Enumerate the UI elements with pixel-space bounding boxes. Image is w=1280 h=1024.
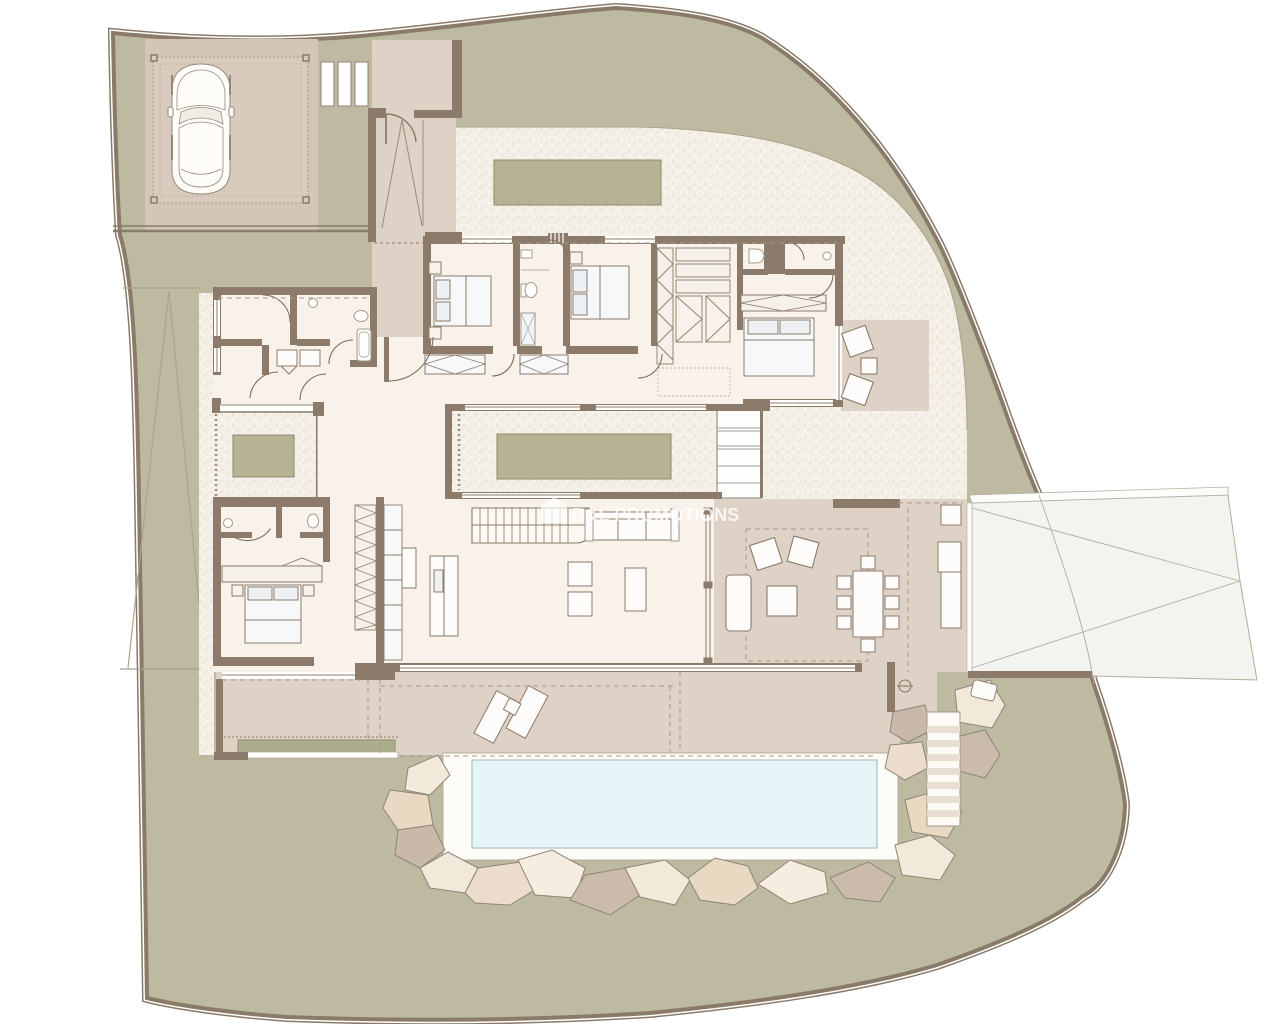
svg-text:D&L PROMOTIONS: D&L PROMOTIONS xyxy=(572,505,739,525)
